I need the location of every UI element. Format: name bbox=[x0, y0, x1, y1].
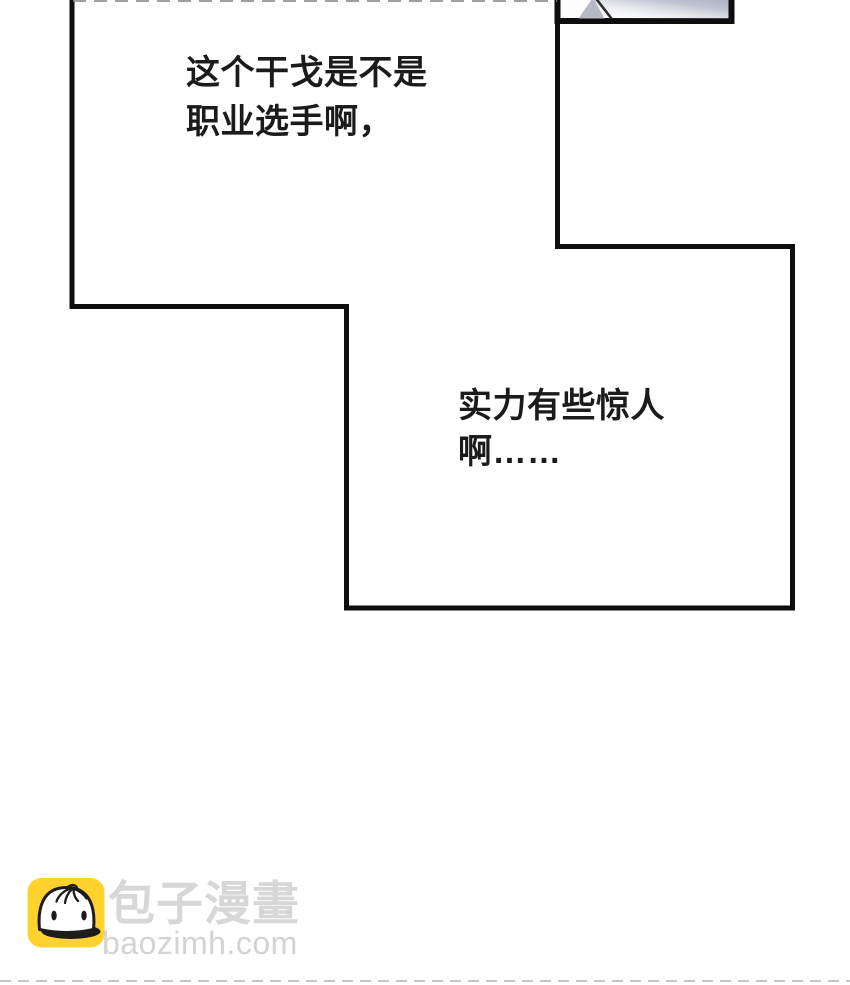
panel-border-path bbox=[72, 0, 793, 608]
speech-line: 职业选手啊， bbox=[186, 98, 428, 147]
fragment-shade bbox=[592, 0, 729, 19]
comic-page: 这个干戈是不是 职业选手啊， 实力有些惊人 啊…… 包子漫畫 baozimh bbox=[0, 0, 850, 985]
speech-line: 啊…… bbox=[458, 429, 665, 475]
top-edge-remnant bbox=[73, 0, 557, 2]
speech-bubble-2: 实力有些惊人 啊…… bbox=[458, 383, 665, 475]
next-panel-edge-dashes bbox=[0, 980, 850, 982]
panel-borders bbox=[0, 0, 850, 985]
speech-line: 这个干戈是不是 bbox=[186, 49, 428, 98]
speech-line: 实力有些惊人 bbox=[458, 383, 665, 429]
speech-bubble-1: 这个干戈是不是 职业选手啊， bbox=[186, 49, 428, 146]
